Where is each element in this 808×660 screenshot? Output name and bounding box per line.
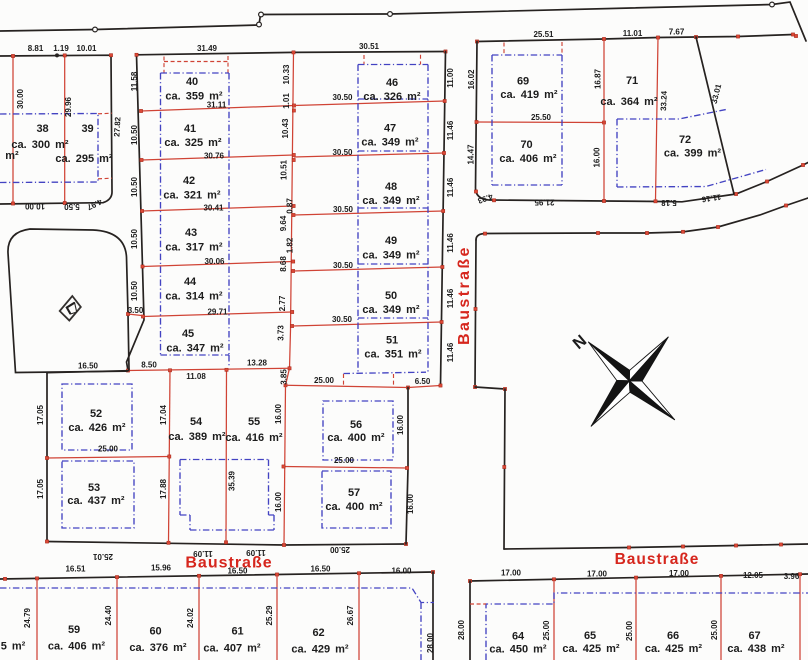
svg-text:0.87: 0.87 [285, 198, 294, 214]
svg-text:Baustraße: Baustraße [615, 551, 700, 568]
svg-text:30.50: 30.50 [332, 315, 353, 324]
svg-text:33.24: 33.24 [659, 90, 669, 111]
svg-text:10.00: 10.00 [24, 202, 45, 211]
svg-text:16.02: 16.02 [467, 69, 476, 90]
svg-text:28.00: 28.00 [457, 619, 466, 640]
svg-text:45: 45 [182, 328, 194, 340]
svg-text:38: 38 [36, 123, 48, 135]
svg-text:4.93: 4.93 [476, 192, 494, 206]
svg-text:N: N [570, 332, 591, 353]
svg-text:24.79: 24.79 [23, 607, 32, 628]
svg-text:10.50: 10.50 [130, 228, 139, 249]
svg-text:16.00: 16.00 [592, 147, 601, 168]
svg-text:ca. 389 m²: ca. 389 m² [168, 431, 226, 443]
svg-text:ca. 429 m²: ca. 429 m² [291, 644, 349, 656]
svg-text:16.87: 16.87 [593, 68, 602, 89]
svg-text:55: 55 [248, 416, 260, 428]
svg-text:25.50: 25.50 [531, 113, 552, 122]
svg-text:Baustraße: Baustraße [456, 245, 473, 345]
svg-text:42: 42 [183, 175, 195, 187]
svg-text:11.08: 11.08 [186, 372, 206, 381]
svg-text:29.71: 29.71 [207, 307, 228, 316]
svg-text:41: 41 [184, 123, 196, 135]
svg-text:31.49: 31.49 [197, 44, 218, 53]
svg-text:11.01: 11.01 [623, 29, 643, 38]
svg-text:30.50: 30.50 [333, 205, 354, 214]
svg-text:64: 64 [512, 631, 525, 643]
svg-text:1.19: 1.19 [53, 44, 69, 53]
svg-text:17.05: 17.05 [36, 478, 45, 499]
svg-text:25.00: 25.00 [329, 545, 350, 554]
svg-text:28.00: 28.00 [426, 632, 435, 653]
svg-text:25.00: 25.00 [98, 444, 119, 453]
svg-text:53: 53 [88, 482, 100, 494]
svg-text:10.50: 10.50 [130, 124, 139, 145]
svg-text:14.47: 14.47 [466, 144, 475, 165]
svg-text:11.46: 11.46 [446, 288, 455, 308]
svg-text:16.00: 16.00 [274, 491, 283, 512]
svg-text:ca. 349 m²: ca. 349 m² [362, 195, 420, 207]
svg-text:7.67: 7.67 [669, 27, 685, 36]
svg-text:10.50: 10.50 [130, 176, 139, 197]
svg-text:16.00: 16.00 [406, 493, 415, 514]
svg-text:62: 62 [312, 627, 324, 639]
svg-text:30.06: 30.06 [204, 257, 225, 266]
svg-text:71: 71 [626, 75, 638, 87]
svg-text:11.46: 11.46 [446, 177, 455, 197]
svg-text:11.46: 11.46 [446, 342, 455, 362]
svg-text:ca. 406 m²: ca. 406 m² [48, 641, 106, 653]
svg-text:30.51: 30.51 [359, 42, 380, 51]
svg-text:ca. 351 m²: ca. 351 m² [364, 349, 422, 361]
svg-text:ca. 416 m²: ca. 416 m² [225, 432, 283, 444]
svg-text:56: 56 [350, 419, 362, 431]
svg-text:10.51: 10.51 [279, 159, 288, 180]
svg-text:17.00: 17.00 [501, 568, 522, 577]
svg-text:ca. 300 m²: ca. 300 m² [11, 139, 69, 151]
svg-text:16.50: 16.50 [310, 564, 331, 573]
svg-text:11.46: 11.46 [446, 233, 455, 253]
svg-text:12.05: 12.05 [743, 571, 764, 580]
svg-text:ca. 450 m²: ca. 450 m² [489, 644, 547, 656]
svg-text:60: 60 [149, 626, 161, 638]
svg-text:ca. 376 m²: ca. 376 m² [129, 642, 187, 654]
svg-text:30.41: 30.41 [203, 203, 224, 212]
svg-text:25.00: 25.00 [314, 376, 335, 385]
svg-text:25.00: 25.00 [542, 620, 551, 641]
svg-text:8.81: 8.81 [28, 44, 44, 53]
svg-text:m²: m² [5, 150, 19, 162]
svg-text:25.29: 25.29 [265, 605, 274, 626]
svg-text:24.40: 24.40 [104, 605, 113, 626]
svg-text:8.68: 8.68 [279, 256, 288, 272]
svg-text:47: 47 [384, 123, 396, 135]
svg-text:ca. 425 m²: ca. 425 m² [562, 643, 620, 655]
svg-text:ca. 364 m²: ca. 364 m² [600, 96, 658, 108]
svg-text:61: 61 [231, 626, 243, 638]
svg-text:3.73: 3.73 [276, 325, 285, 341]
svg-text:2.77: 2.77 [278, 295, 287, 311]
svg-text:69: 69 [517, 76, 529, 88]
svg-text:ca. 419 m²: ca. 419 m² [500, 89, 558, 101]
svg-text:1.82: 1.82 [285, 237, 294, 253]
svg-text:54: 54 [190, 416, 203, 428]
svg-text:57: 57 [348, 487, 360, 499]
svg-text:49: 49 [385, 235, 397, 247]
svg-text:11.58: 11.58 [130, 71, 139, 91]
svg-text:52: 52 [90, 408, 102, 420]
svg-text:ca. 349 m²: ca. 349 m² [362, 250, 420, 262]
svg-text:30.76: 30.76 [204, 151, 225, 160]
svg-text:16.00: 16.00 [274, 403, 283, 424]
svg-text:3.50: 3.50 [128, 306, 144, 315]
svg-text:25.01: 25.01 [92, 552, 113, 561]
svg-text:ca. 399 m²: ca. 399 m² [664, 148, 722, 160]
svg-text:8.50: 8.50 [141, 360, 157, 369]
svg-text:66: 66 [667, 630, 679, 642]
svg-text:51: 51 [386, 335, 398, 347]
svg-text:10.50: 10.50 [130, 280, 139, 301]
svg-text:10.01: 10.01 [76, 44, 97, 53]
svg-text:3.85: 3.85 [279, 369, 288, 385]
svg-text:26.67: 26.67 [346, 605, 355, 626]
svg-text:48: 48 [385, 181, 397, 193]
svg-text:5 m²: 5 m² [1, 641, 26, 653]
svg-text:29.96: 29.96 [64, 96, 73, 117]
svg-text:46: 46 [386, 77, 398, 89]
svg-text:11.09: 11.09 [246, 548, 266, 557]
svg-text:43: 43 [185, 227, 197, 239]
svg-text:11.00: 11.00 [446, 68, 455, 88]
svg-text:25.51: 25.51 [533, 30, 554, 39]
svg-text:11.09: 11.09 [193, 549, 213, 558]
svg-text:25.00: 25.00 [625, 620, 634, 641]
svg-text:25.00: 25.00 [710, 619, 719, 640]
svg-text:ca. 317 m²: ca. 317 m² [165, 242, 223, 254]
svg-text:ca. 326 m²: ca. 326 m² [363, 91, 421, 103]
svg-text:50: 50 [385, 290, 397, 302]
svg-text:5.50: 5.50 [64, 202, 80, 211]
svg-text:ca. 437 m²: ca. 437 m² [67, 495, 125, 507]
svg-text:21.95: 21.95 [534, 198, 555, 207]
svg-text:17.00: 17.00 [669, 569, 690, 578]
svg-text:17.04: 17.04 [159, 404, 168, 425]
svg-text:16.00: 16.00 [391, 566, 412, 575]
svg-text:30.50: 30.50 [332, 93, 353, 102]
svg-text:16.50: 16.50 [227, 566, 248, 575]
svg-text:72: 72 [679, 134, 691, 146]
svg-text:17.88: 17.88 [159, 478, 168, 499]
svg-text:ca. 400 m²: ca. 400 m² [327, 432, 385, 444]
svg-text:ca. 295 m²: ca. 295 m² [55, 153, 113, 165]
svg-text:27.82: 27.82 [112, 116, 122, 137]
svg-text:5.18: 5.18 [661, 198, 677, 207]
svg-text:30.50: 30.50 [333, 261, 354, 270]
svg-text:16.50: 16.50 [78, 361, 99, 370]
svg-text:16.00: 16.00 [396, 414, 405, 435]
svg-text:40: 40 [186, 76, 198, 88]
svg-text:ca. 407 m²: ca. 407 m² [203, 643, 261, 655]
svg-text:11.46: 11.46 [446, 120, 455, 140]
svg-text:ca. 314 m²: ca. 314 m² [165, 291, 223, 303]
svg-text:ca. 438 m²: ca. 438 m² [727, 643, 785, 655]
svg-text:ca. 321 m²: ca. 321 m² [163, 190, 221, 202]
svg-text:6.50: 6.50 [415, 377, 431, 386]
svg-text:ca. 349 m²: ca. 349 m² [361, 137, 419, 149]
svg-text:11.16: 11.16 [700, 192, 721, 204]
svg-text:39: 39 [81, 123, 93, 135]
svg-text:24.02: 24.02 [186, 607, 195, 628]
svg-text:59: 59 [68, 624, 80, 636]
svg-text:ca. 325 m²: ca. 325 m² [164, 137, 222, 149]
svg-text:9.64: 9.64 [279, 215, 288, 231]
svg-text:17.05: 17.05 [36, 404, 45, 425]
svg-text:30.00: 30.00 [16, 88, 25, 109]
svg-text:25.00: 25.00 [334, 456, 355, 465]
svg-text:1.01: 1.01 [282, 93, 291, 109]
svg-text:44: 44 [184, 276, 197, 288]
svg-text:10.33: 10.33 [282, 64, 291, 85]
svg-text:33.01: 33.01 [710, 83, 724, 105]
svg-text:30.50: 30.50 [332, 148, 353, 157]
svg-text:ca. 349 m²: ca. 349 m² [362, 304, 420, 316]
svg-text:16.51: 16.51 [65, 564, 86, 573]
svg-text:ca. 347 m²: ca. 347 m² [166, 343, 224, 355]
svg-text:67: 67 [748, 630, 760, 642]
svg-text:35.39: 35.39 [227, 470, 236, 491]
svg-text:ca. 400 m²: ca. 400 m² [325, 501, 383, 513]
svg-text:ca. 426 m²: ca. 426 m² [68, 422, 126, 434]
svg-text:ca. 406 m²: ca. 406 m² [499, 153, 557, 165]
svg-text:3.96: 3.96 [784, 572, 800, 581]
svg-text:ca. 425 m²: ca. 425 m² [645, 643, 703, 655]
svg-text:13.28: 13.28 [247, 358, 268, 367]
svg-text:17.00: 17.00 [587, 569, 608, 578]
svg-text:15.96: 15.96 [151, 563, 172, 572]
svg-text:10.43: 10.43 [281, 118, 290, 139]
svg-text:31.11: 31.11 [207, 100, 227, 109]
svg-text:4.97: 4.97 [85, 197, 103, 212]
svg-text:65: 65 [584, 630, 596, 642]
svg-text:70: 70 [520, 139, 532, 151]
